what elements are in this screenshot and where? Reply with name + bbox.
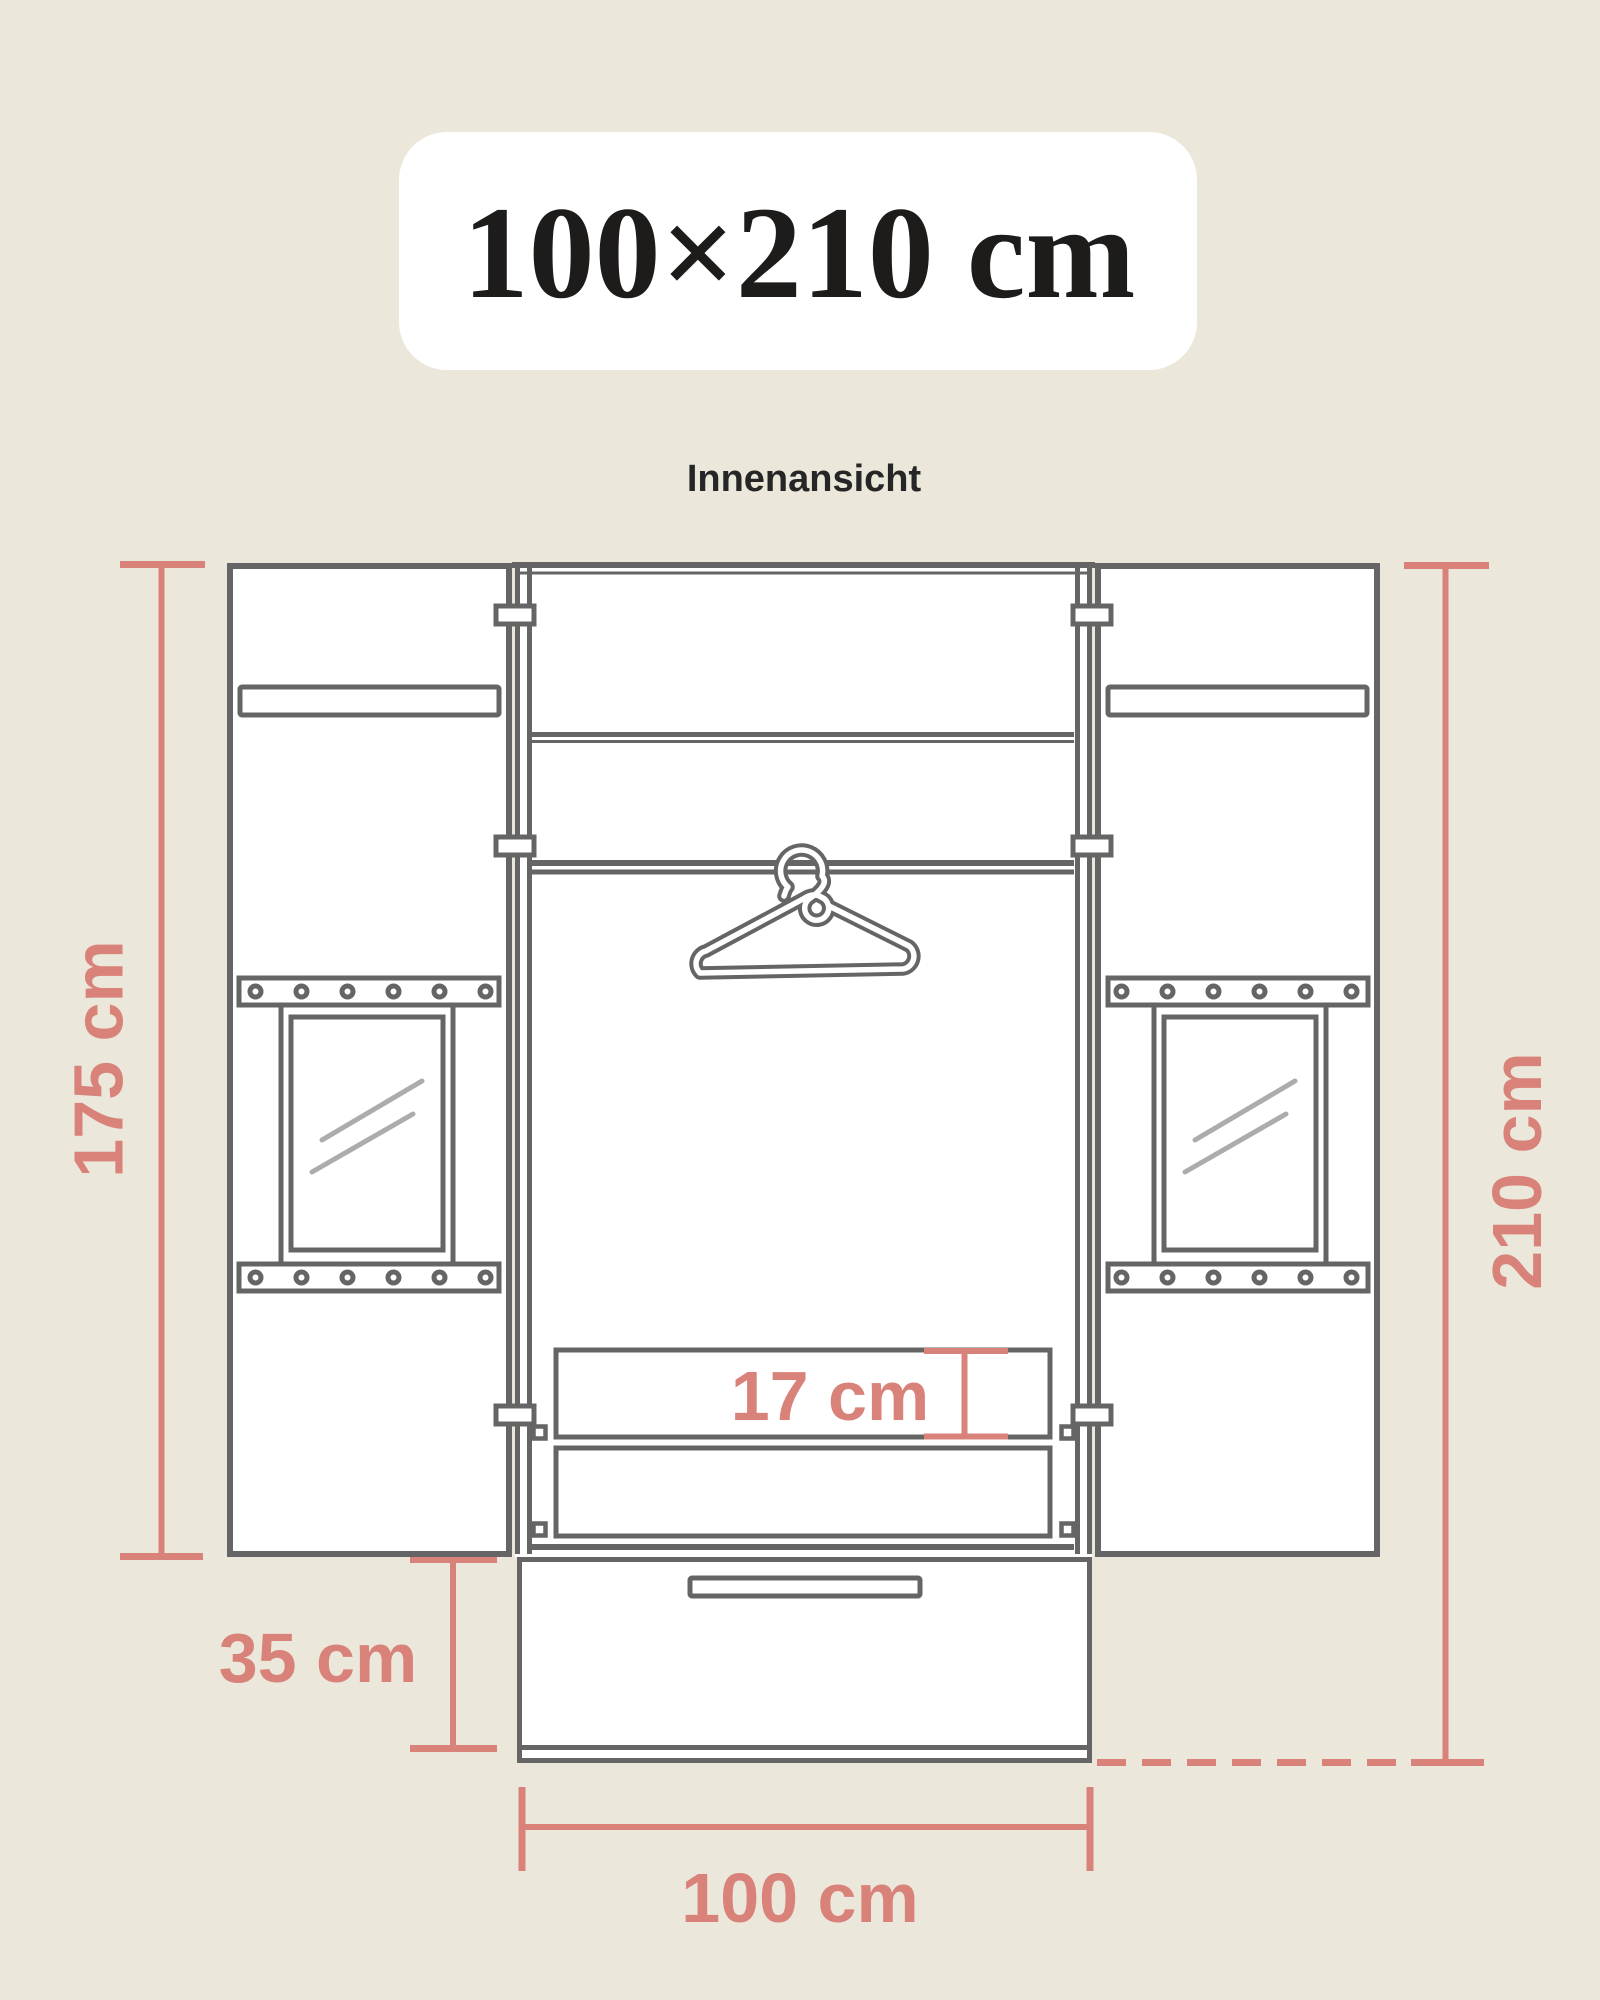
svg-text:210 cm: 210 cm (1478, 1052, 1556, 1289)
svg-text:100 cm: 100 cm (681, 1859, 918, 1937)
svg-text:175 cm: 175 cm (60, 940, 138, 1177)
svg-text:35 cm: 35 cm (219, 1619, 417, 1697)
svg-text:17 cm: 17 cm (731, 1357, 929, 1435)
svg-text:Innenansicht: Innenansicht (687, 458, 922, 500)
svg-text:100×210 cm: 100×210 cm (463, 179, 1136, 326)
